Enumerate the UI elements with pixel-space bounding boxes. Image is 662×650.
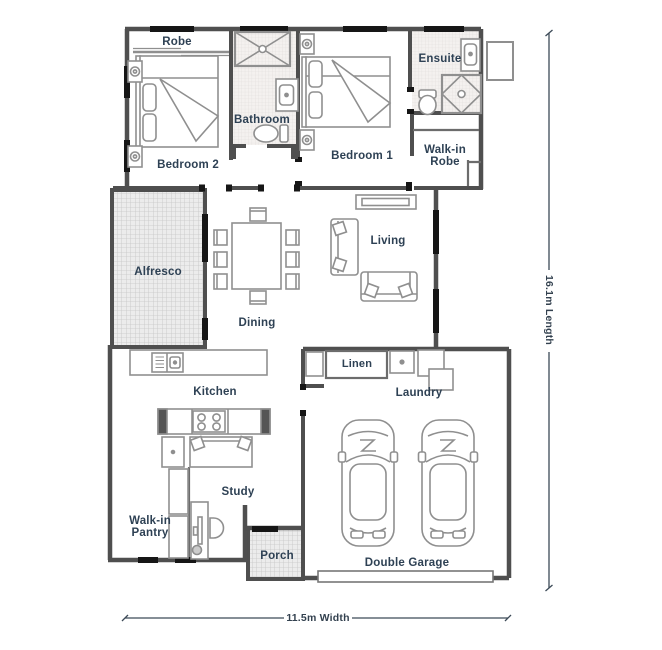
room-label-living: Living xyxy=(370,235,405,247)
room-label-linen: Linen xyxy=(342,358,372,370)
room-label-kitchen: Kitchen xyxy=(193,386,237,398)
room-label-porch: Porch xyxy=(260,550,294,562)
walk-in-robe-line-2: Robe xyxy=(430,156,460,168)
garage-door-icon xyxy=(318,571,493,582)
kitchen-bench-icon xyxy=(130,350,267,375)
room-label-walk-in-robe: Walk-in Robe xyxy=(424,144,466,168)
room-label-study: Study xyxy=(222,486,255,498)
sofa-icon xyxy=(331,219,358,275)
room-label-bathroom: Bathroom xyxy=(234,114,290,126)
double-bed-icon xyxy=(302,57,390,127)
vanity-sink-icon xyxy=(276,79,298,111)
dining-table-icon xyxy=(232,223,281,289)
room-label-robe: Robe xyxy=(162,36,192,48)
toilet-icon xyxy=(254,125,288,142)
room-label-bedroom-2: Bedroom 2 xyxy=(157,159,219,171)
cooktop-icon xyxy=(193,411,225,432)
room-label-ensuite: Ensuite xyxy=(419,53,462,65)
toilet-icon xyxy=(419,90,436,115)
vanity-sink-icon xyxy=(461,39,480,71)
dimension-width-label: 11.5m Width xyxy=(286,612,349,624)
shower-icon xyxy=(235,32,290,66)
walk-in-pantry-line-1: Walk-in xyxy=(129,515,171,527)
sofa-icon xyxy=(361,272,417,301)
room-label-double-garage: Double Garage xyxy=(365,557,449,569)
double-bed-icon xyxy=(136,56,218,147)
dimension-length-label: 16.1m Length xyxy=(543,275,555,345)
car-icon xyxy=(419,420,478,546)
laundry-tub-icon xyxy=(390,351,414,373)
floor-plan-drawing xyxy=(0,0,662,650)
kitchen-sink-icon xyxy=(152,353,183,372)
room-label-dining: Dining xyxy=(239,317,276,329)
walk-in-robe-line-1: Walk-in xyxy=(424,144,466,156)
breakfast-table-icon xyxy=(190,436,252,467)
room-label-walk-in-pantry: Walk-in Pantry xyxy=(129,515,171,539)
fridge-cabinet-icon xyxy=(162,437,184,467)
walk-in-pantry-line-2: Pantry xyxy=(132,527,169,539)
robe-doors-icon xyxy=(133,49,229,56)
washing-machine-icon xyxy=(418,350,453,390)
car-icon xyxy=(339,420,398,546)
laundry-cupboard-icon xyxy=(306,352,323,376)
tv-unit-icon xyxy=(356,195,416,209)
room-label-bedroom-1: Bedroom 1 xyxy=(331,150,393,162)
shower-icon xyxy=(442,75,481,113)
pantry-shelf-icon xyxy=(169,469,188,558)
room-label-alfresco: Alfresco xyxy=(134,266,182,278)
hot-water-unit-icon xyxy=(487,42,513,80)
floor-plan-page: Robe Ensuite Bathroom Bedroom 2 Bedroom … xyxy=(0,0,662,650)
room-label-laundry: Laundry xyxy=(396,387,443,399)
